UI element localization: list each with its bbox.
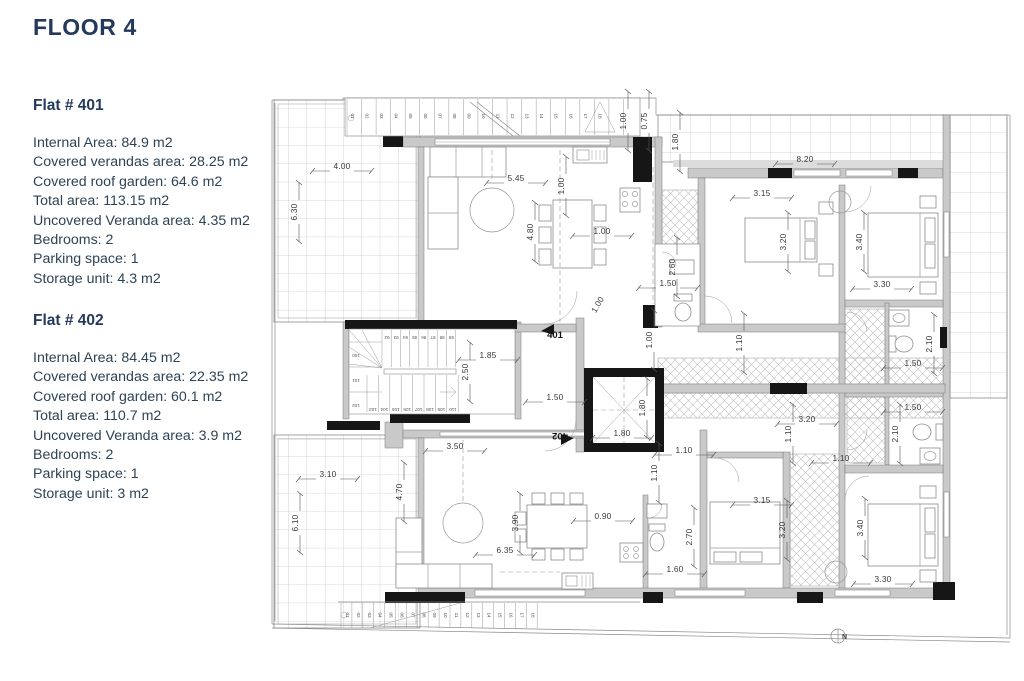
step-number: 18 bbox=[597, 113, 602, 119]
living-room-402 bbox=[396, 493, 643, 589]
step-number: 92 bbox=[384, 335, 390, 340]
step-number: 01 bbox=[350, 113, 355, 119]
svg-text:1.50: 1.50 bbox=[660, 278, 677, 288]
dimension-label: 4.80 bbox=[525, 200, 538, 264]
svg-text:1.60: 1.60 bbox=[667, 564, 684, 574]
dimension-label: 3.50 bbox=[423, 441, 487, 454]
svg-text:1.80: 1.80 bbox=[614, 428, 631, 438]
svg-text:1.00: 1.00 bbox=[589, 295, 606, 315]
svg-text:3.10: 3.10 bbox=[320, 469, 337, 479]
dimension-label: 1.00 bbox=[589, 295, 606, 315]
spec-line: Covered verandas area: 22.35 m2 bbox=[33, 368, 293, 387]
svg-text:1.00: 1.00 bbox=[618, 112, 628, 129]
step-number: 17 bbox=[583, 113, 588, 119]
staircase-internal bbox=[349, 329, 515, 414]
hob bbox=[620, 188, 640, 212]
step-number: 106 bbox=[403, 407, 411, 412]
dimension-label: 3.30 bbox=[851, 574, 915, 587]
kitchen-sink bbox=[562, 573, 593, 589]
spec-line: Parking space: 1 bbox=[33, 250, 293, 269]
unit-label: 401 bbox=[547, 330, 564, 341]
unit-markers bbox=[541, 324, 574, 445]
spec-line: Internal Area: 84.45 m2 bbox=[33, 349, 293, 368]
step-number: 93 bbox=[393, 335, 399, 340]
svg-text:4.00: 4.00 bbox=[334, 161, 351, 171]
step-number: 11 bbox=[496, 114, 501, 119]
step-number: 07 bbox=[410, 612, 415, 618]
step-number: 100 bbox=[352, 353, 360, 358]
svg-text:3.30: 3.30 bbox=[875, 574, 892, 584]
bathroom-402 bbox=[913, 424, 943, 464]
svg-text:6.10: 6.10 bbox=[290, 514, 300, 531]
spec-line: Covered roof garden: 60.1 m2 bbox=[33, 388, 293, 407]
bedroom1-402 bbox=[710, 502, 780, 564]
step-number: 11 bbox=[454, 613, 459, 618]
svg-text:2.60: 2.60 bbox=[667, 258, 677, 275]
svg-text:2.70: 2.70 bbox=[684, 528, 694, 545]
spec-line: Covered verandas area: 28.25 m2 bbox=[33, 153, 293, 172]
staircase-top bbox=[345, 98, 640, 136]
step-number: 15 bbox=[554, 113, 559, 119]
step-number: 05 bbox=[408, 113, 413, 119]
svg-text:1.00: 1.00 bbox=[594, 226, 611, 236]
elevator bbox=[584, 368, 664, 452]
wc-402 bbox=[647, 504, 667, 551]
spec-line: Uncovered Veranda area: 3.9 m2 bbox=[33, 427, 293, 446]
step-number: 13 bbox=[476, 612, 481, 618]
step-number: 02 bbox=[356, 612, 361, 618]
step-number: 05 bbox=[389, 612, 394, 618]
svg-text:1.80: 1.80 bbox=[637, 399, 647, 416]
spec-line: Total area: 113.15 m2 bbox=[33, 192, 293, 211]
bathroom-401 bbox=[889, 310, 913, 352]
step-number: 04 bbox=[378, 612, 383, 618]
step-number: 08 bbox=[452, 113, 457, 119]
step-number: 04 bbox=[394, 113, 399, 119]
step-number: 99 bbox=[448, 335, 454, 340]
step-number: 102 bbox=[352, 403, 360, 408]
step-number: 06 bbox=[400, 612, 405, 618]
dining-table bbox=[527, 505, 587, 548]
svg-text:1.85: 1.85 bbox=[480, 350, 497, 360]
step-number: 10 bbox=[443, 612, 448, 618]
svg-text:1.50: 1.50 bbox=[547, 392, 564, 402]
north-arrow: N bbox=[831, 629, 847, 643]
svg-text:1.10: 1.10 bbox=[783, 425, 793, 442]
step-number: 108 bbox=[426, 407, 434, 412]
step-number: 08 bbox=[421, 612, 426, 618]
svg-text:5.45: 5.45 bbox=[508, 173, 525, 183]
spec-line: Internal Area: 84.9 m2 bbox=[33, 134, 293, 153]
step-number: 15 bbox=[498, 612, 503, 618]
step-number: 10 bbox=[481, 113, 486, 119]
step-number: 09 bbox=[466, 113, 471, 119]
svg-text:3.40: 3.40 bbox=[854, 233, 864, 250]
svg-text:2.10: 2.10 bbox=[924, 335, 934, 352]
rug bbox=[443, 503, 483, 543]
svg-text:2.10: 2.10 bbox=[890, 425, 900, 442]
svg-text:2.50: 2.50 bbox=[460, 363, 470, 380]
step-number: 94 bbox=[402, 335, 408, 340]
flat-401-info: Flat # 401 Internal Area: 84.9 m2Covered… bbox=[33, 97, 293, 289]
svg-text:0.75: 0.75 bbox=[639, 112, 649, 129]
step-number: 07 bbox=[437, 113, 442, 119]
unit-labels: 401402 bbox=[547, 330, 568, 441]
step-number: 13 bbox=[525, 113, 530, 119]
rug bbox=[470, 188, 514, 232]
svg-text:0.90: 0.90 bbox=[595, 511, 612, 521]
dimension-label: 3.40 bbox=[854, 210, 867, 274]
flat-title: Flat # 402 bbox=[33, 312, 293, 330]
side-veranda bbox=[950, 115, 1007, 398]
dimension-label: 2.70 bbox=[684, 505, 697, 569]
step-number: 16 bbox=[509, 612, 514, 618]
svg-text:6.35: 6.35 bbox=[497, 545, 514, 555]
svg-text:1.80: 1.80 bbox=[670, 133, 680, 150]
flat-specs: Internal Area: 84.45 m2Covered verandas … bbox=[33, 349, 293, 504]
svg-text:3.50: 3.50 bbox=[447, 441, 464, 451]
step-number: 101 bbox=[352, 378, 360, 383]
flat-specs: Internal Area: 84.9 m2Covered verandas a… bbox=[33, 134, 293, 289]
step-number: 16 bbox=[568, 113, 573, 119]
svg-text:1.00: 1.00 bbox=[556, 177, 566, 194]
spec-line: Parking space: 1 bbox=[33, 465, 293, 484]
step-number: 02 bbox=[365, 113, 370, 119]
step-number: 109 bbox=[437, 407, 445, 412]
step-number: 03 bbox=[367, 612, 372, 618]
svg-text:3.20: 3.20 bbox=[799, 414, 816, 424]
step-number: 103 bbox=[369, 407, 377, 412]
svg-text:1.50: 1.50 bbox=[905, 402, 922, 412]
svg-text:3.90: 3.90 bbox=[510, 514, 520, 531]
spec-line: Bedrooms: 2 bbox=[33, 231, 293, 250]
svg-text:1.50: 1.50 bbox=[905, 358, 922, 368]
flat-402-info: Flat # 402 Internal Area: 84.45 m2Covere… bbox=[33, 312, 293, 504]
dining-table bbox=[553, 200, 592, 268]
svg-text:6.30: 6.30 bbox=[289, 203, 299, 220]
svg-text:1.10: 1.10 bbox=[676, 445, 693, 455]
step-number: 107 bbox=[414, 407, 422, 412]
spec-line: Covered roof garden: 64.6 m2 bbox=[33, 173, 293, 192]
step-number: 110 bbox=[449, 407, 457, 412]
spec-line: Total area: 110.7 m2 bbox=[33, 407, 293, 426]
step-number: 03 bbox=[379, 113, 384, 119]
step-number: 01 bbox=[345, 612, 350, 618]
step-number: 98 bbox=[439, 335, 445, 340]
svg-text:1.10: 1.10 bbox=[833, 453, 850, 463]
spec-line: Bedrooms: 2 bbox=[33, 446, 293, 465]
svg-text:N: N bbox=[842, 634, 847, 641]
svg-text:4.80: 4.80 bbox=[525, 223, 535, 240]
svg-text:3.20: 3.20 bbox=[777, 521, 787, 538]
spec-line: Storage unit: 4.3 m2 bbox=[33, 270, 293, 289]
svg-text:3.30: 3.30 bbox=[874, 279, 891, 289]
step-number: 17 bbox=[519, 612, 524, 618]
floor-plan-page: FLOOR 4 Flat # 401 Internal Area: 84.9 m… bbox=[0, 0, 1024, 681]
svg-text:1.00: 1.00 bbox=[644, 331, 654, 348]
flat-title: Flat # 401 bbox=[33, 97, 293, 115]
step-number: 95 bbox=[412, 335, 418, 340]
dimension-label: 3.30 bbox=[850, 279, 914, 292]
step-number: 12 bbox=[465, 612, 470, 618]
dimension-label: 1.60 bbox=[643, 564, 707, 577]
svg-text:4.70: 4.70 bbox=[394, 483, 404, 500]
svg-text:3.15: 3.15 bbox=[754, 495, 771, 505]
svg-text:1.10: 1.10 bbox=[649, 464, 659, 481]
step-number: 104 bbox=[380, 407, 388, 412]
step-number: 18 bbox=[530, 612, 535, 618]
living-room-401 bbox=[428, 147, 640, 268]
dimension-label: 3.40 bbox=[855, 496, 868, 560]
svg-text:3.15: 3.15 bbox=[754, 188, 771, 198]
spec-line: Uncovered Veranda area: 4.35 m2 bbox=[33, 212, 293, 231]
step-number: 105 bbox=[392, 407, 400, 412]
step-number: 12 bbox=[510, 113, 515, 119]
unit-label: 402 bbox=[552, 430, 568, 441]
hob bbox=[620, 543, 643, 562]
svg-text:1.10: 1.10 bbox=[734, 334, 744, 351]
floor-plan-drawing: N 4.006.305.451.004.801.001.001.000.751.… bbox=[270, 72, 1015, 650]
step-number: 96 bbox=[421, 335, 427, 340]
spec-line: Storage unit: 3 m2 bbox=[33, 485, 293, 504]
step-number: 06 bbox=[423, 113, 428, 119]
step-number: 09 bbox=[432, 612, 437, 618]
step-number: 14 bbox=[539, 113, 544, 119]
page-title: FLOOR 4 bbox=[33, 14, 137, 41]
step-number: 14 bbox=[487, 612, 492, 618]
svg-text:3.40: 3.40 bbox=[855, 519, 865, 536]
svg-text:3.20: 3.20 bbox=[778, 233, 788, 250]
dimension-label: 3.15 bbox=[730, 188, 794, 201]
svg-text:8.20: 8.20 bbox=[797, 154, 814, 164]
kitchen-sink bbox=[573, 147, 607, 163]
step-number: 97 bbox=[430, 335, 436, 340]
